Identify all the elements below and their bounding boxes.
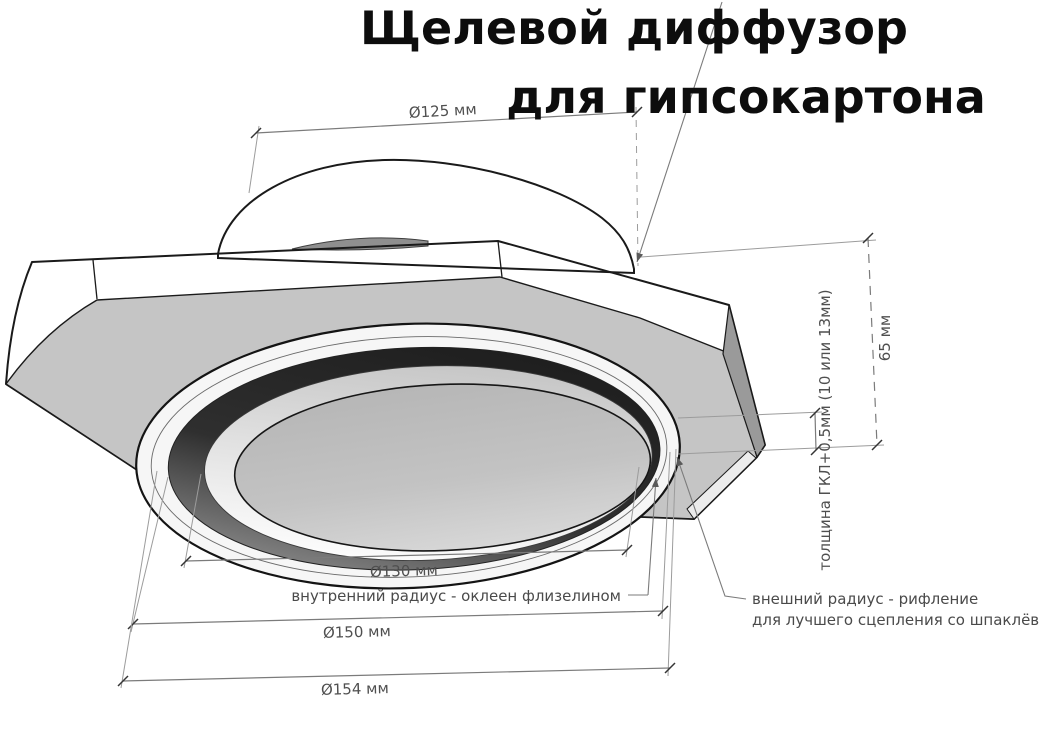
plate-crease-bend (498, 241, 502, 277)
page-title-line2: для гипсокартона (506, 70, 986, 124)
plate-crease-left (93, 260, 97, 299)
diffuser-drawing-page: Ø125 мм 65 мм толщина ГКЛ+0,5мм (10 или … (0, 0, 1040, 729)
outer-radius-note-line1: внешний радиус - рифление (752, 590, 978, 608)
duct-collar (218, 160, 634, 273)
label-collar-diameter: Ø125 мм (408, 100, 477, 122)
label-inner-diameter: Ø130 мм (370, 561, 438, 581)
outer-radius-note-line2: для лучшего сцепления со шпаклёвкой (752, 611, 1040, 629)
diffuser-3d-render (6, 160, 765, 600)
dimension-collar-diameter: Ø125 мм (249, 100, 642, 266)
label-outer-diameter: Ø154 мм (321, 679, 389, 699)
inner-radius-note: внутренний радиус - оклеен флизелином (291, 587, 621, 605)
label-board-thickness: толщина ГКЛ+0,5мм (10 или 13мм) (816, 289, 834, 570)
label-height: 65 мм (876, 315, 894, 362)
label-trim-diameter: Ø150 мм (323, 622, 391, 642)
technical-diagram: Ø125 мм 65 мм толщина ГКЛ+0,5мм (10 или … (0, 0, 1040, 729)
page-title-line1: Щелевой диффузор (360, 1, 908, 55)
